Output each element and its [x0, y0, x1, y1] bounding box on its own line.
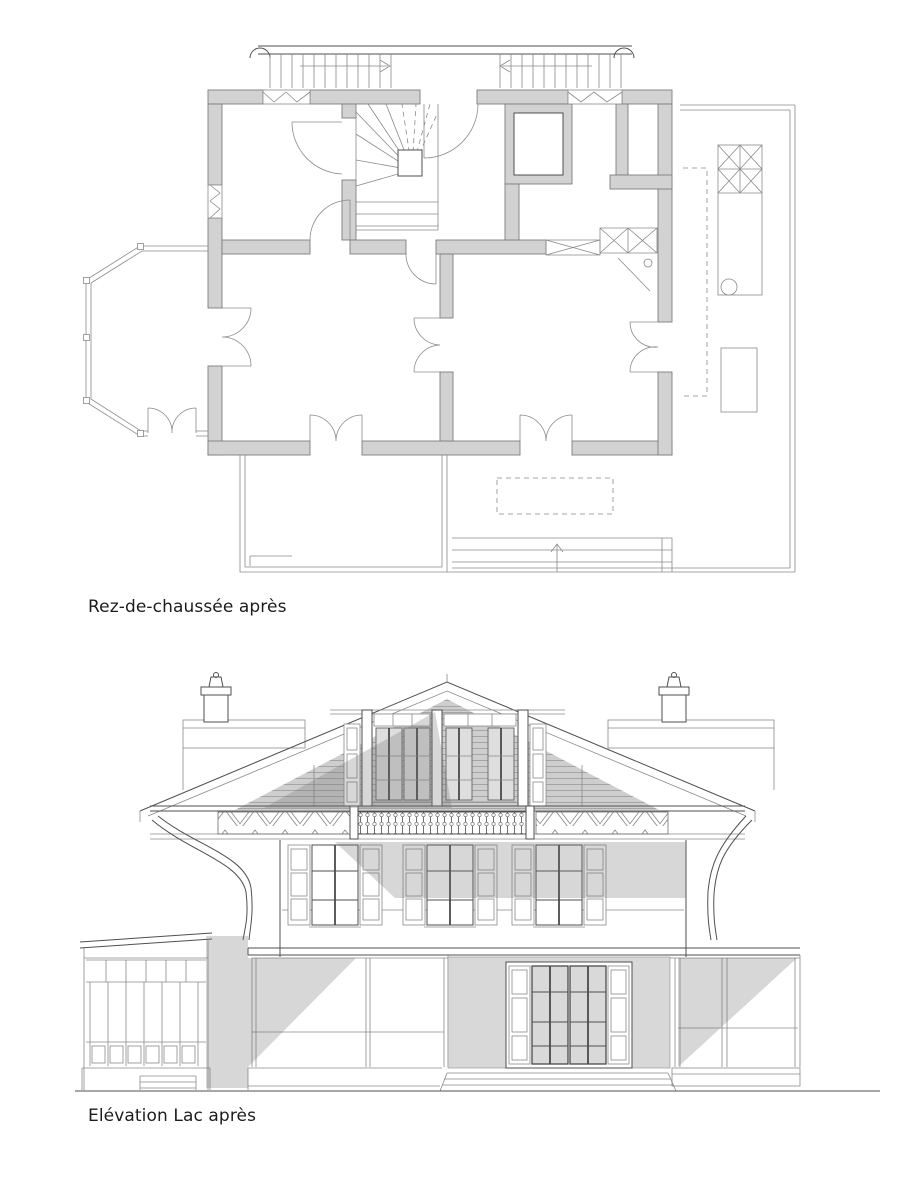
plan-cupboards: [546, 228, 657, 255]
elev-conservatory: [80, 933, 212, 1090]
elevation-caption: Elévation Lac après: [88, 1106, 256, 1126]
plan-veranda-octagon: [84, 244, 209, 437]
plan-stair: [356, 104, 438, 230]
plan-exterior-stairs: [250, 46, 634, 88]
elev-balcony: [150, 806, 745, 839]
plan-walls: [208, 90, 672, 455]
drawing-sheet: Rez-de-chaussée après: [0, 0, 917, 1188]
plan-side-terrace: [680, 105, 795, 572]
floor-plan-drawing: [0, 0, 917, 620]
plan-terrace: [240, 455, 795, 572]
floor-plan-caption: Rez-de-chaussée après: [88, 597, 287, 617]
elevation-drawing: [0, 670, 917, 1110]
